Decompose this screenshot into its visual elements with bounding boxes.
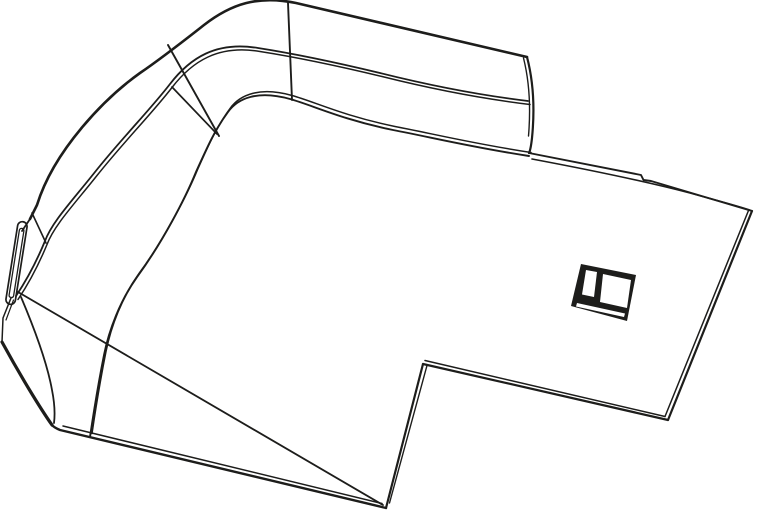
notch-edge-pair: [386, 364, 423, 508]
sheet-top-right-edge-pair: [529, 153, 752, 211]
sheet-right-edge-pair: [665, 211, 749, 417]
wall-base-edge-pair: [92, 92, 531, 434]
sheet-bottom-right-edge-pair: [425, 361, 665, 417]
sheet-bottom-left-edge-pair: [63, 426, 382, 504]
wall-rim-edge-pair: [16, 46, 528, 296]
sheet-bottom-left-edge-pair: [52, 425, 386, 508]
sheet-crease-line: [18, 292, 383, 505]
notch-edge-pair: [390, 366, 428, 504]
corner-seam-lines: [288, 3, 292, 100]
wall-base-edge-pair: [90, 95, 529, 437]
wall-end-fork-lines: [32, 213, 46, 243]
latch-hole-right-window: [600, 274, 631, 308]
sheet-top-right-edge-pair: [532, 159, 751, 211]
wall-top-outer-edge: [30, 0, 527, 219]
wall-rim-edge-pair: [18, 50, 530, 300]
wall-tab-right-edge: [524, 58, 530, 136]
technical-drawing-canvas: [0, 0, 759, 514]
sheet-left-corner-edge: [2, 342, 52, 425]
technical-drawing: [0, 0, 759, 514]
sheet-right-edge-pair: [668, 211, 752, 420]
sheet-bottom-right-edge-pair: [423, 364, 668, 420]
